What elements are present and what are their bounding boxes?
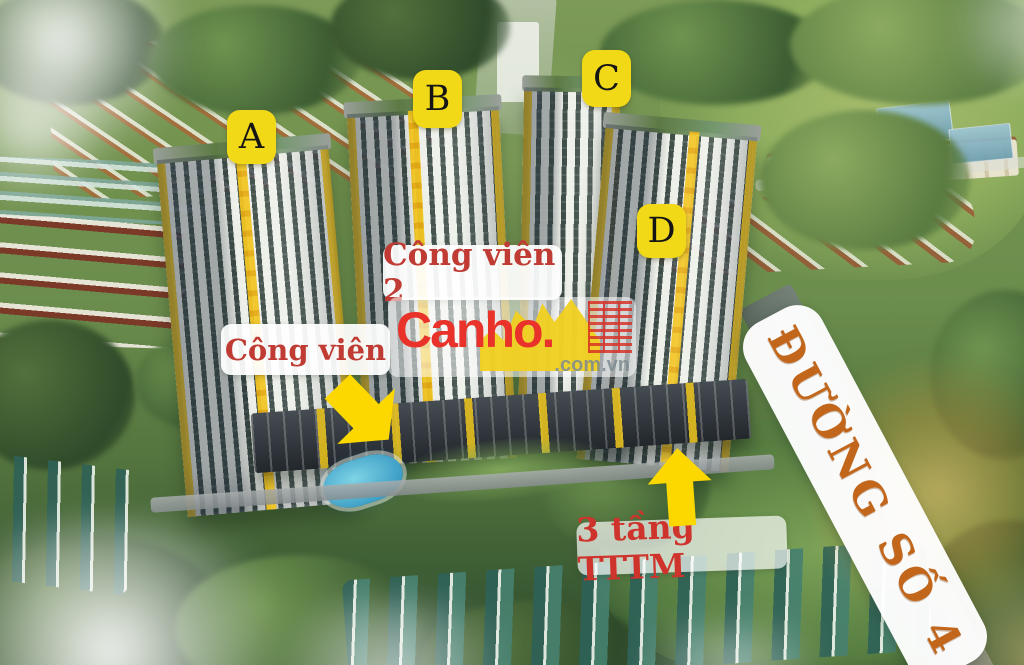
tower-badge-c: C [582, 50, 631, 107]
canho-brand: Canho. [396, 305, 553, 355]
canho-watermark: Canho. .com.vn [388, 297, 636, 377]
tower-badge-d: D [637, 204, 686, 258]
park-label: Công viên [221, 324, 390, 375]
tree-cluster [760, 110, 970, 250]
aerial-render: A B C D Công viên 2 Công viên 3 tầng TTT… [0, 0, 1024, 665]
tower-badge-d-letter: D [647, 211, 675, 251]
tower-badge-c-letter: C [593, 59, 620, 99]
canho-buildings-icon [588, 301, 632, 353]
park-2-label: Công viên 2 [383, 245, 562, 300]
tower-badge-a-letter: A [239, 117, 264, 157]
canho-domain: .com.vn [554, 354, 630, 377]
tower-badge-a: A [227, 110, 276, 164]
park-label-text: Công viên [225, 333, 386, 367]
tower-badge-b: B [413, 70, 462, 128]
tower-badge-b-letter: B [425, 79, 451, 119]
